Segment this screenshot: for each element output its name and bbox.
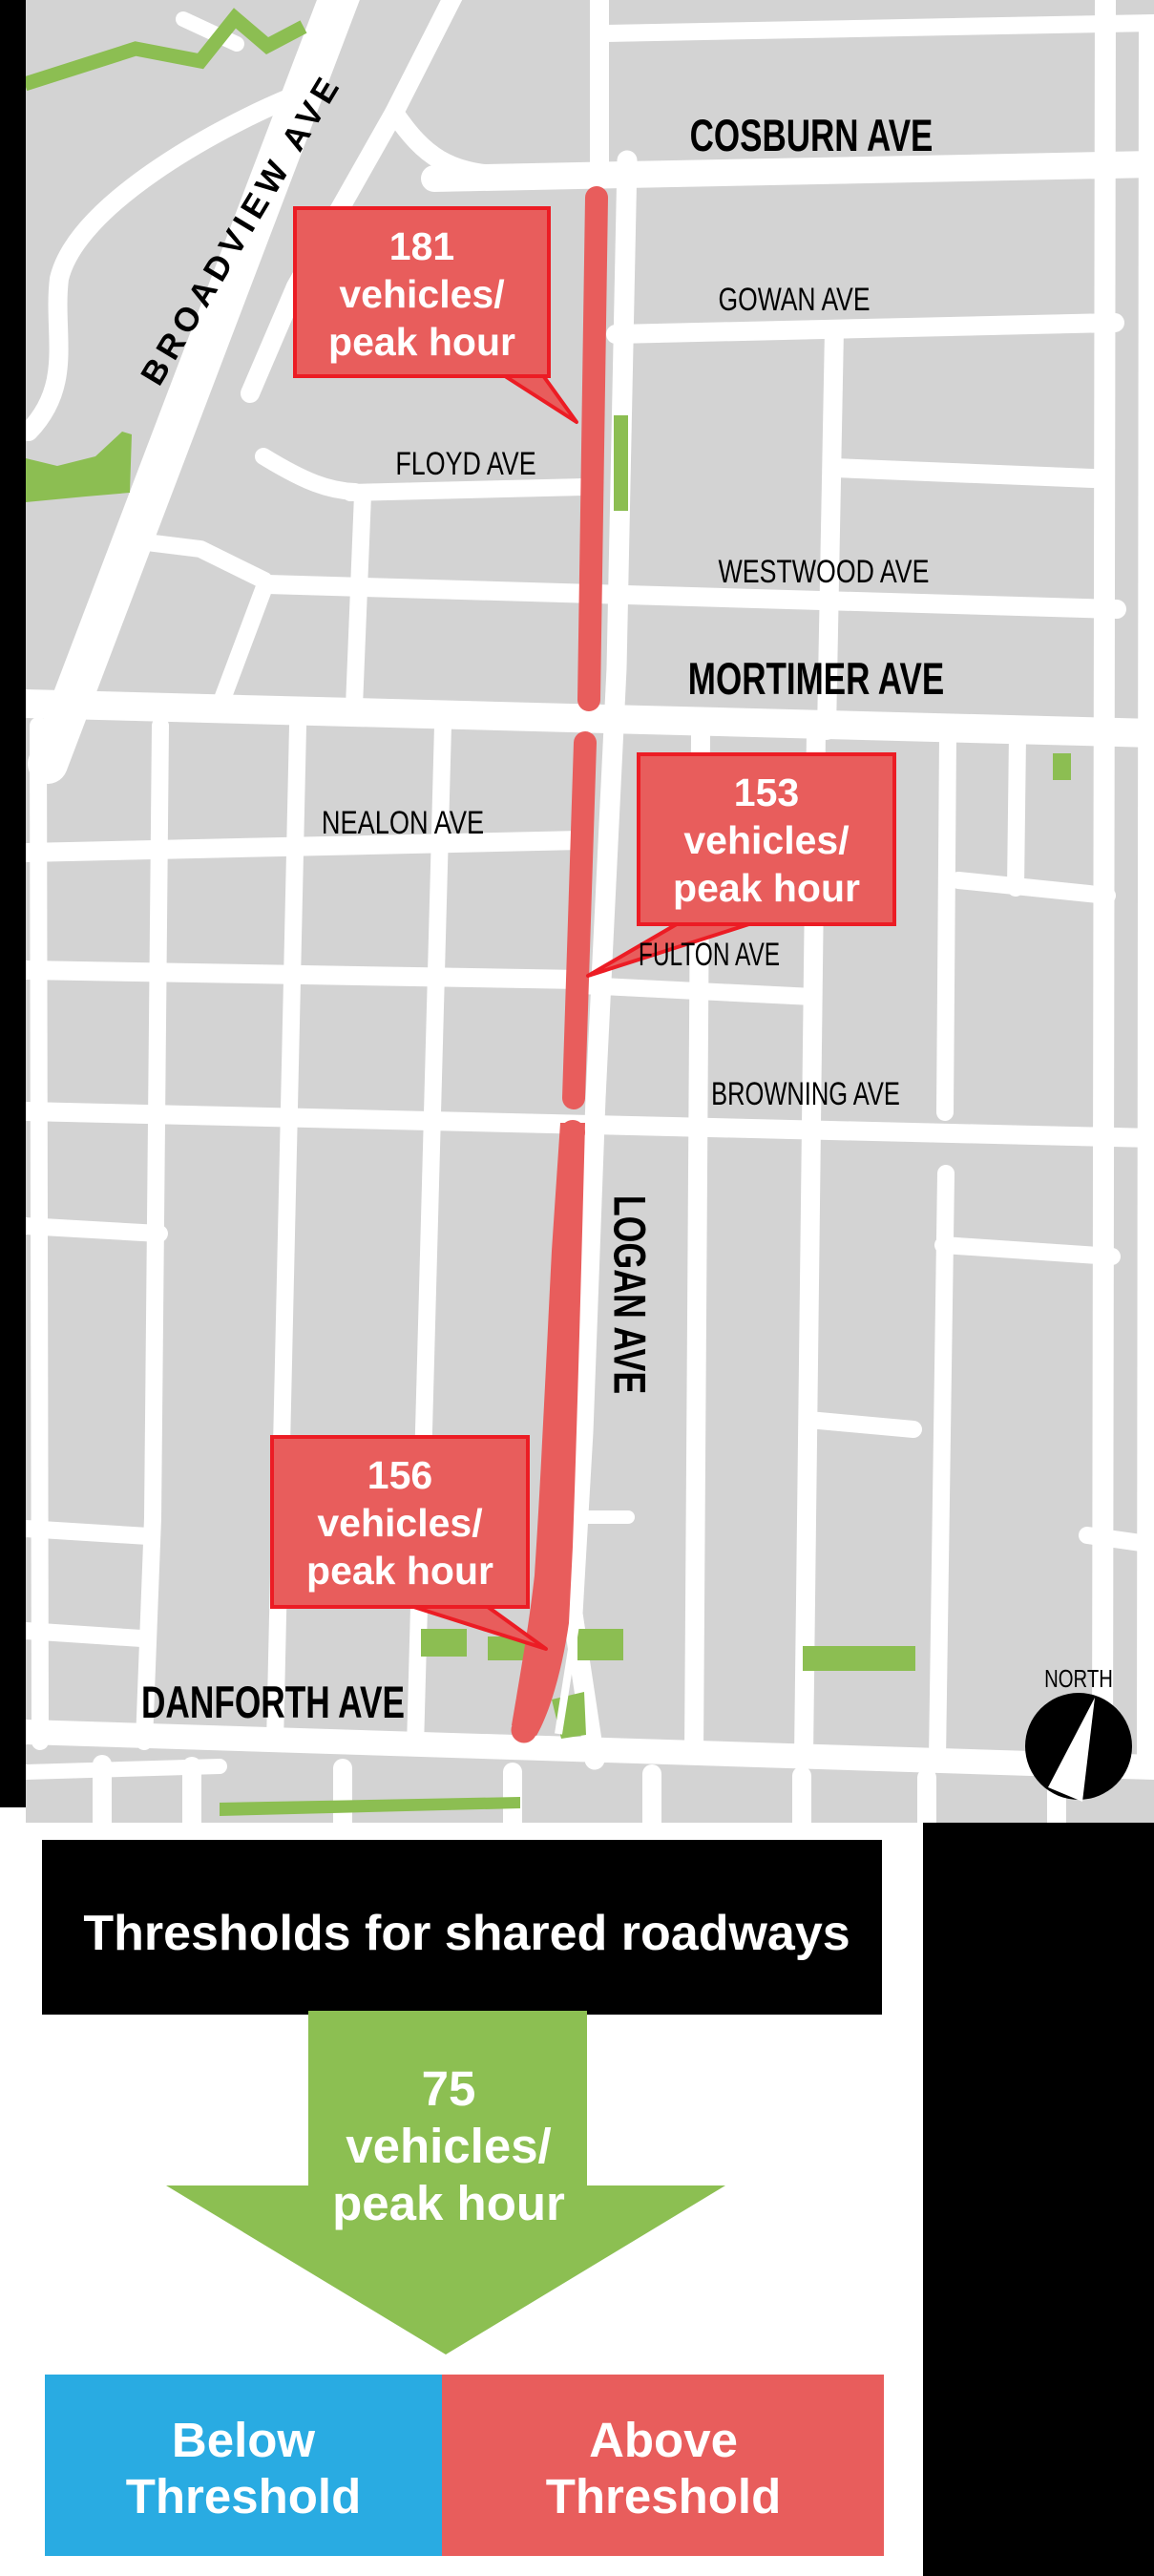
svg-text:MORTIMER AVE: MORTIMER AVE: [688, 653, 944, 704]
svg-text:WESTWOOD AVE: WESTWOOD AVE: [719, 554, 930, 590]
svg-text:Thresholds for shared roadways: Thresholds for shared roadways: [83, 1906, 850, 1961]
svg-text:NEALON AVE: NEALON AVE: [322, 804, 484, 841]
svg-text:COSBURN AVE: COSBURN AVE: [690, 110, 934, 160]
svg-text:peak hour: peak hour: [328, 320, 515, 364]
svg-text:75: 75: [422, 2061, 476, 2116]
svg-text:156: 156: [367, 1453, 432, 1497]
svg-text:peak hour: peak hour: [673, 866, 860, 910]
svg-text:181: 181: [389, 224, 454, 268]
svg-text:vehicles/: vehicles/: [346, 2119, 551, 2173]
svg-text:DANFORTH AVE: DANFORTH AVE: [141, 1677, 405, 1727]
svg-text:NORTH: NORTH: [1044, 1665, 1113, 1693]
svg-text:peak hour: peak hour: [332, 2176, 565, 2230]
svg-text:Threshold: Threshold: [126, 2469, 362, 2523]
svg-text:LOGAN AVE: LOGAN AVE: [605, 1195, 656, 1394]
svg-text:FLOYD AVE: FLOYD AVE: [395, 446, 535, 482]
svg-text:Below: Below: [172, 2413, 316, 2467]
svg-text:GOWAN AVE: GOWAN AVE: [718, 282, 870, 318]
svg-text:Threshold: Threshold: [546, 2469, 782, 2523]
svg-text:153: 153: [734, 771, 799, 814]
svg-text:vehicles/: vehicles/: [339, 272, 504, 316]
svg-text:Above: Above: [589, 2413, 738, 2467]
svg-text:vehicles/: vehicles/: [317, 1501, 482, 1545]
svg-text:vehicles/: vehicles/: [683, 818, 849, 862]
svg-text:FULTON AVE: FULTON AVE: [639, 937, 780, 973]
svg-text:BROWNING AVE: BROWNING AVE: [711, 1077, 900, 1112]
svg-text:peak hour: peak hour: [306, 1549, 493, 1593]
